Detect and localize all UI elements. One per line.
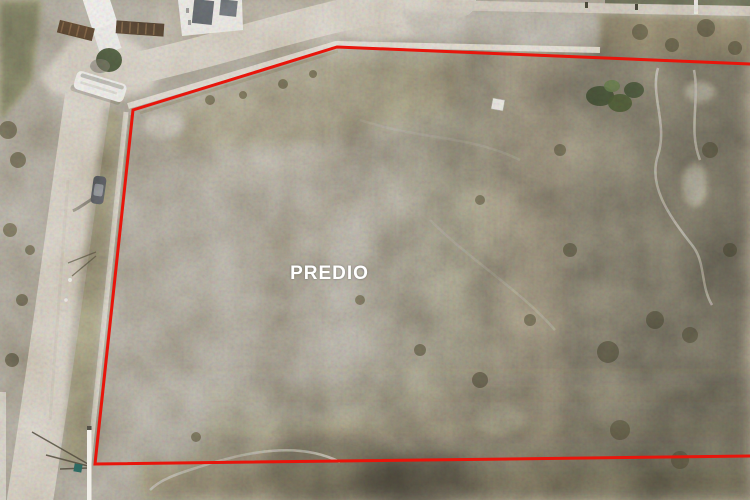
aerial-scene <box>0 0 750 500</box>
aerial-photo: PREDIO <box>0 0 750 500</box>
pole-tip <box>87 426 92 430</box>
noise-fine <box>0 0 750 500</box>
texture-overlays <box>0 0 750 500</box>
predio-label: PREDIO <box>282 263 377 285</box>
teal-box <box>73 463 82 472</box>
